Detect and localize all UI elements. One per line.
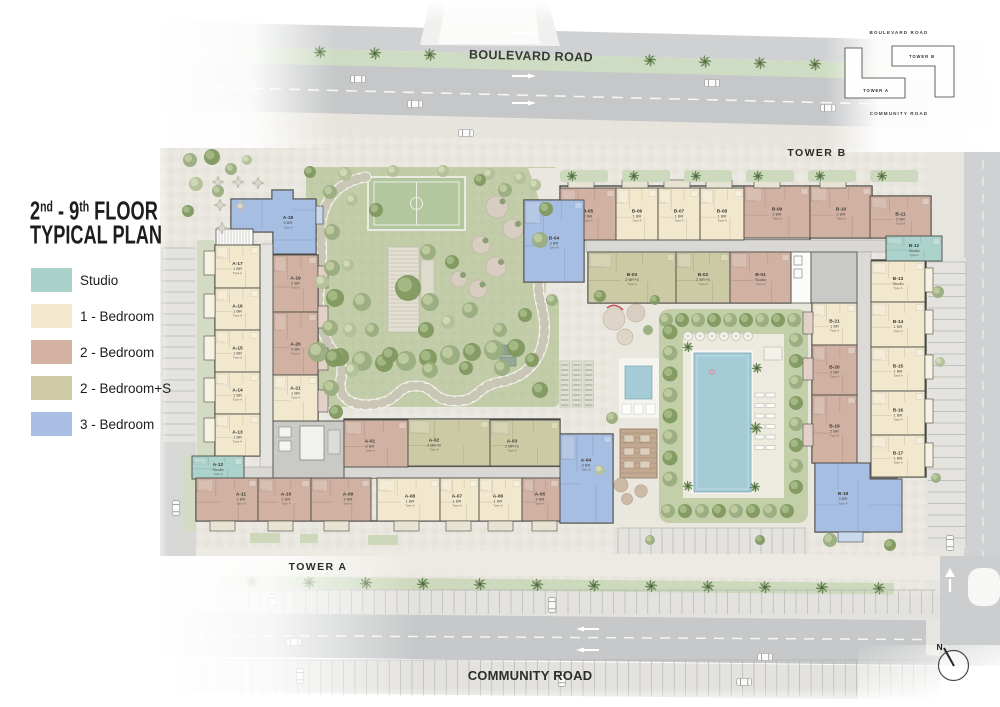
svg-text:COMMUNITY ROAD: COMMUNITY ROAD: [870, 111, 928, 116]
svg-text:Type A: Type A: [343, 502, 352, 506]
svg-text:COMMUNITY ROAD: COMMUNITY ROAD: [468, 668, 593, 683]
svg-text:TOWER A: TOWER A: [863, 88, 889, 93]
svg-text:Type B: Type B: [549, 246, 558, 250]
svg-text:3 - Bedroom: 3 - Bedroom: [80, 417, 154, 432]
svg-text:Type A: Type A: [893, 461, 902, 465]
svg-text:Type A: Type A: [213, 472, 222, 476]
svg-text:Type B: Type B: [896, 222, 905, 226]
svg-text:Type B: Type B: [581, 468, 590, 472]
svg-text:Type A: Type A: [836, 217, 845, 221]
svg-text:BOULEVARD ROAD: BOULEVARD ROAD: [870, 30, 929, 35]
svg-text:Type A: Type A: [281, 502, 290, 506]
svg-text:2 - Bedroom: 2 - Bedroom: [80, 345, 154, 360]
svg-text:TYPICAL PLAN: TYPICAL PLAN: [30, 220, 162, 249]
svg-text:Type A: Type A: [291, 352, 300, 356]
svg-text:TOWER B: TOWER B: [787, 147, 846, 159]
svg-text:Type A: Type A: [233, 440, 242, 444]
svg-text:Type A: Type A: [756, 282, 765, 286]
svg-text:Type A: Type A: [674, 219, 683, 223]
svg-text:Type A: Type A: [452, 504, 461, 508]
svg-text:1 - Bedroom: 1 - Bedroom: [80, 309, 154, 324]
svg-text:Type A: Type A: [233, 271, 242, 275]
svg-text:Type A: Type A: [893, 329, 902, 333]
svg-text:Type A: Type A: [583, 219, 592, 223]
svg-text:Type A: Type A: [283, 226, 292, 230]
svg-text:Type A: Type A: [632, 219, 641, 223]
svg-text:2 - Bedroom+S: 2 - Bedroom+S: [80, 381, 171, 396]
svg-text:Type A: Type A: [291, 396, 300, 400]
svg-text:Type A: Type A: [830, 329, 839, 333]
svg-text:Type A: Type A: [717, 219, 726, 223]
svg-text:Type A: Type A: [233, 398, 242, 402]
svg-text:TOWER A: TOWER A: [289, 561, 348, 573]
svg-text:Type A: Type A: [893, 374, 902, 378]
svg-text:Type A: Type A: [429, 448, 438, 452]
svg-text:Type A: Type A: [909, 253, 918, 257]
svg-text:Type A: Type A: [233, 356, 242, 360]
svg-text:Type A: Type A: [627, 282, 636, 286]
svg-text:Type A: Type A: [365, 449, 374, 453]
svg-text:TOWER B: TOWER B: [909, 54, 935, 59]
svg-text:Type B: Type B: [236, 502, 245, 506]
svg-text:Type A: Type A: [493, 504, 502, 508]
svg-text:Type A: Type A: [233, 314, 242, 318]
svg-text:Type A: Type A: [698, 282, 707, 286]
svg-text:Type A: Type A: [830, 375, 839, 379]
svg-text:3 BR: 3 BR: [839, 496, 848, 501]
svg-text:Type A: Type A: [893, 286, 902, 290]
svg-text:3 BR: 3 BR: [284, 220, 293, 225]
svg-text:Type A: Type A: [405, 504, 414, 508]
svg-text:Studio: Studio: [80, 273, 118, 288]
svg-text:Type A: Type A: [893, 418, 902, 422]
svg-text:Type A: Type A: [507, 449, 516, 453]
svg-text:Type A: Type A: [535, 502, 544, 506]
svg-text:Type A: Type A: [772, 217, 781, 221]
svg-text:Type A: Type A: [291, 286, 300, 290]
svg-text:N: N: [937, 642, 943, 652]
svg-text:Type A: Type A: [838, 502, 847, 506]
svg-text:Type A: Type A: [830, 434, 839, 438]
